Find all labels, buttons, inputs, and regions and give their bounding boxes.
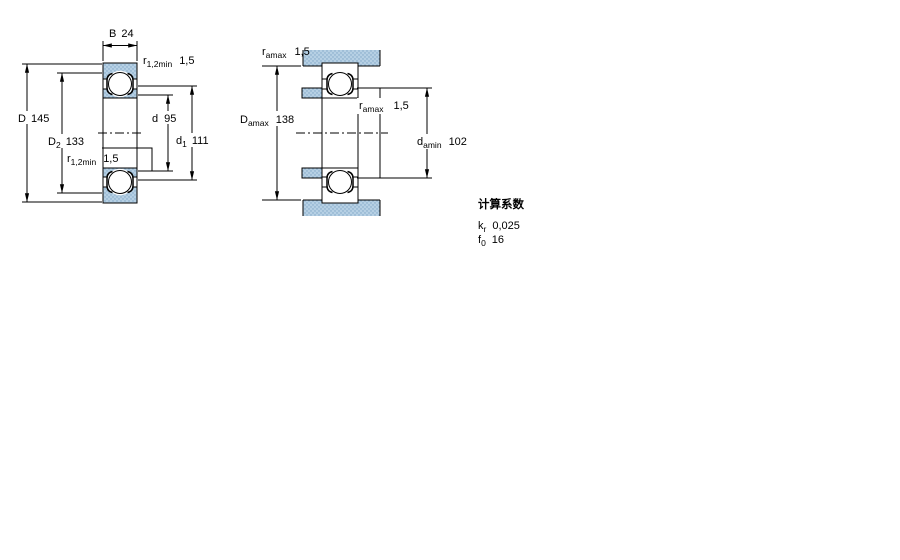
ball-bottom	[109, 171, 132, 194]
label-D2: D2133	[48, 136, 84, 150]
label-d: d95	[152, 113, 176, 125]
bearing-drawing-page: B24 r1,2min1,5 D145 D2133 r1,2min1,5	[0, 0, 900, 560]
abutment-view: ramax1,5 Damax138 ramax1,5 damin102	[238, 46, 472, 216]
label-ramax-top: ramax1,5	[262, 46, 310, 60]
ball-top	[329, 73, 352, 96]
factor-kr: kr0,025	[478, 220, 520, 234]
dimension-Damax	[262, 66, 301, 200]
ball-top	[109, 73, 132, 96]
bearing-section-view: B24 r1,2min1,5 D145 D2133 r1,2min1,5	[16, 28, 212, 203]
dimension-d	[138, 95, 173, 171]
ball-bottom	[329, 171, 352, 194]
label-r12-top: r1,2min1,5	[143, 55, 194, 69]
label-d1: d1111	[176, 135, 209, 149]
calculation-factors-title: 计算系数	[478, 197, 524, 211]
dimension-D2	[57, 73, 102, 193]
shaft-shoulder-top	[302, 88, 322, 98]
dimension-B	[103, 41, 137, 61]
shaft-shoulder-bottom	[302, 168, 322, 178]
label-D: D145	[18, 113, 49, 125]
factor-f0: f016	[478, 234, 504, 248]
calculation-factors: 计算系数 kr0,025 f016	[478, 197, 524, 248]
label-r12-bottom: r1,2min1,5	[67, 153, 118, 167]
bearing-technical-drawing: B24 r1,2min1,5 D145 D2133 r1,2min1,5	[0, 0, 900, 560]
label-B: B24	[109, 28, 134, 40]
